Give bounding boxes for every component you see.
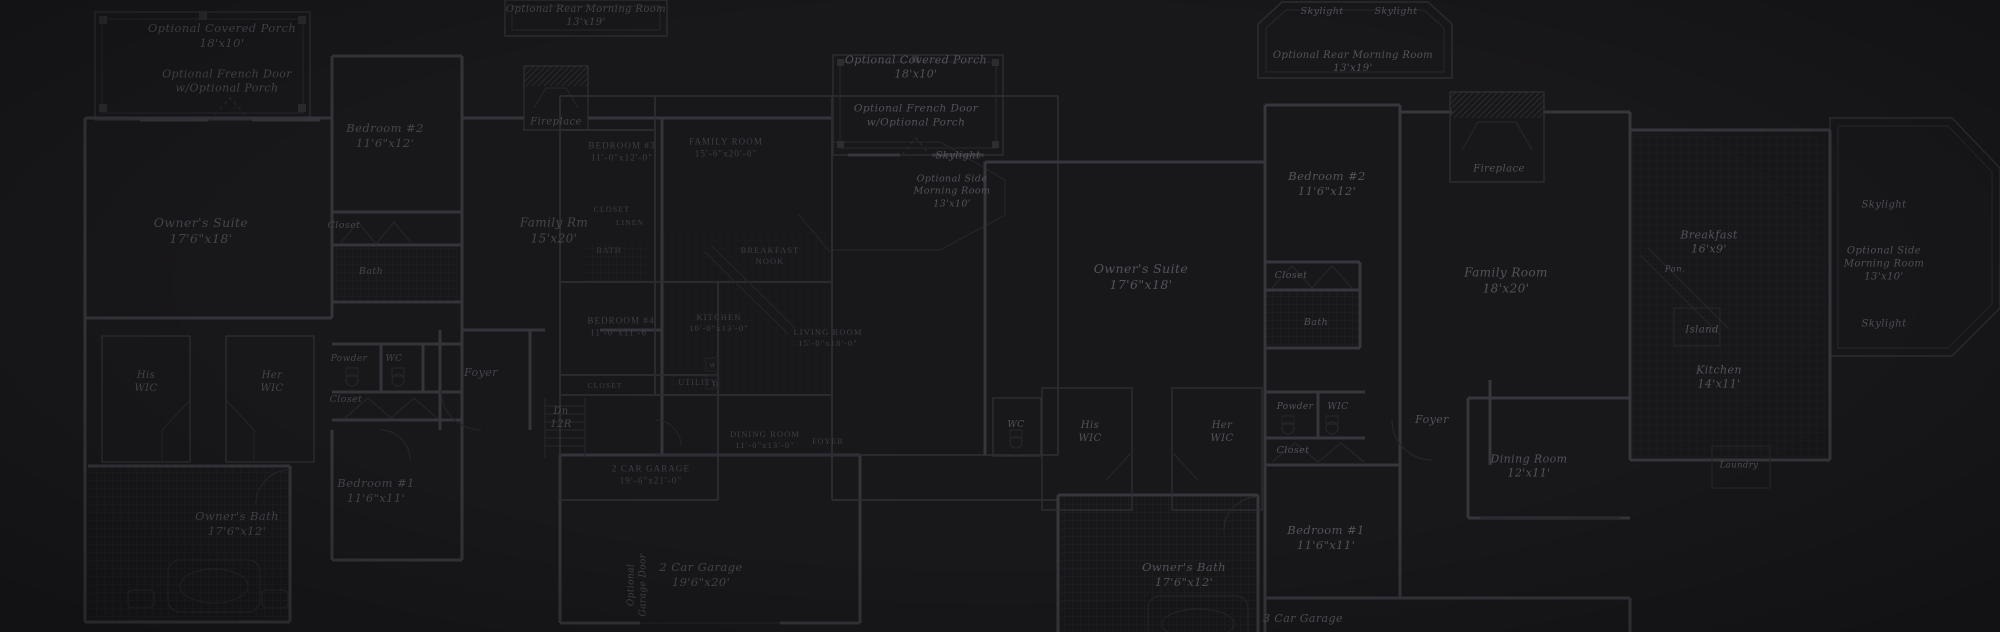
vignette-overlay (0, 0, 2000, 632)
floor-plan-collage: Optional Covered Porch 18'x10'Optional F… (0, 0, 2000, 632)
